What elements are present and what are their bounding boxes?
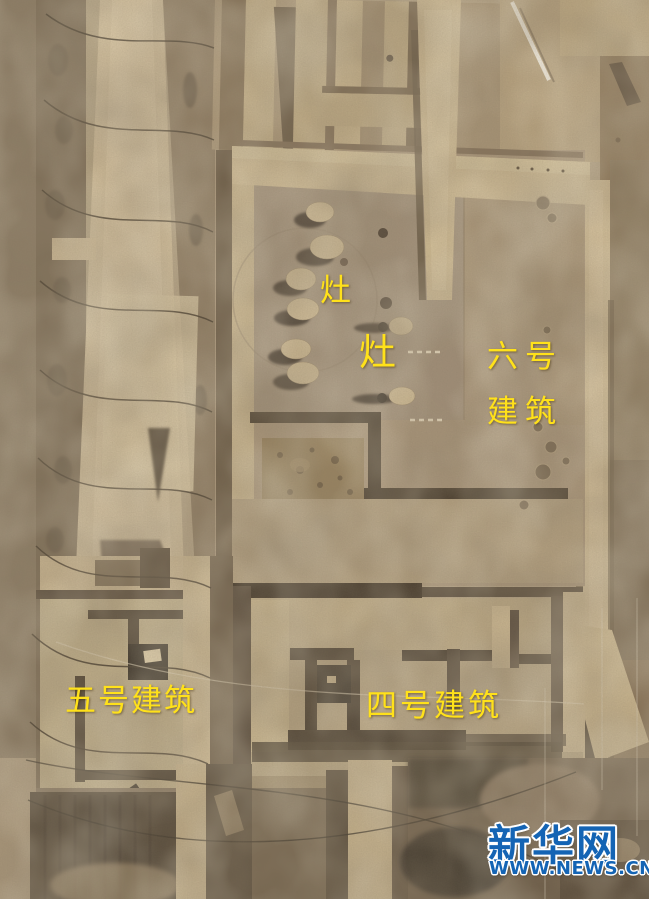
- photo-grain: [0, 0, 649, 899]
- label-building6-line1: 六号: [487, 339, 563, 375]
- aerial-photo-artwork: [0, 0, 649, 899]
- label-hearth-lower: 灶: [359, 334, 396, 371]
- label-building5: 五号建筑: [65, 686, 197, 717]
- xinhuanet-url-watermark: WWW.NEWS.CN: [489, 858, 649, 879]
- label-building4: 四号建筑: [366, 691, 502, 722]
- label-building6: 六号建筑: [487, 330, 563, 440]
- excavation-aerial-photo: 灶 灶 六号建筑 五号建筑 四号建筑 新华网 WWW.NEWS.CN: [0, 0, 649, 899]
- label-building6-line2: 建筑: [487, 394, 563, 430]
- label-hearth-upper: 灶: [320, 276, 351, 307]
